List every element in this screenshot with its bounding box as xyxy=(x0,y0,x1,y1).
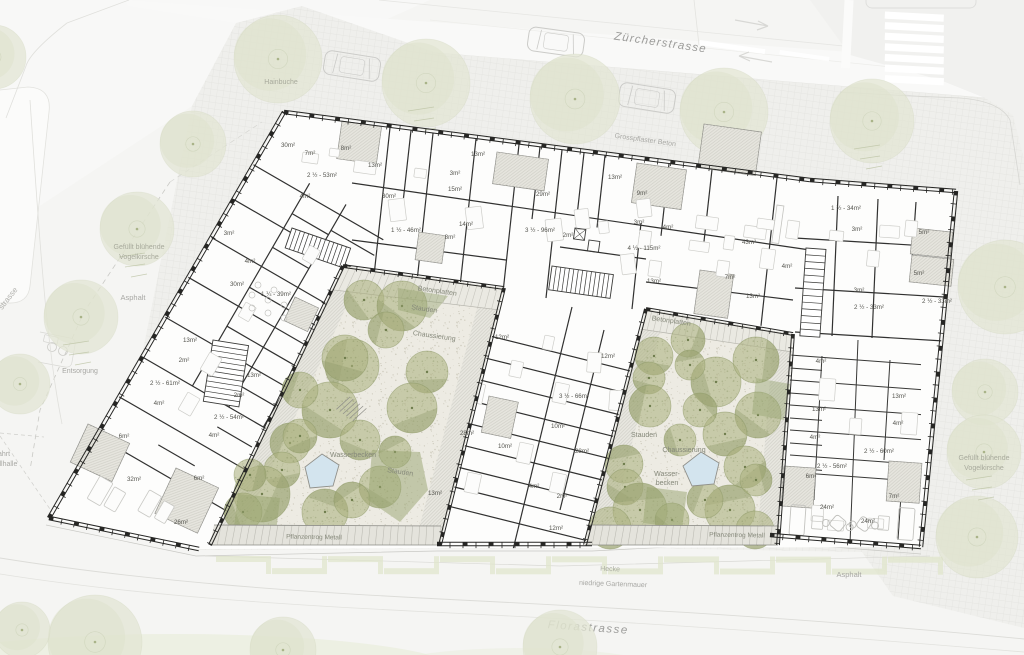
svg-text:Vogelkirsche: Vogelkirsche xyxy=(119,254,159,261)
svg-text:Entsorgung: Entsorgung xyxy=(62,368,98,375)
svg-text:28m²: 28m² xyxy=(460,430,474,437)
svg-text:Einstellhalle: Einstellhalle xyxy=(0,461,17,468)
svg-text:2 ½ - 56m²: 2 ½ - 56m² xyxy=(817,463,847,470)
svg-text:12m²: 12m² xyxy=(549,525,563,532)
svg-text:12m²: 12m² xyxy=(495,334,509,341)
svg-text:4m²: 4m² xyxy=(209,432,220,439)
svg-text:3m²: 3m² xyxy=(854,287,865,294)
svg-text:5m²: 5m² xyxy=(914,270,925,277)
svg-text:4m²: 4m² xyxy=(245,258,256,265)
svg-text:3m²: 3m² xyxy=(634,219,645,226)
svg-text:13m²: 13m² xyxy=(812,406,826,413)
svg-text:2m²: 2m² xyxy=(179,357,190,364)
svg-text:3 ½ - 96m²: 3 ½ - 96m² xyxy=(525,227,555,234)
svg-text:Pflanzentrog Metall: Pflanzentrog Metall xyxy=(286,534,342,542)
svg-text:Hainbuche: Hainbuche xyxy=(264,79,298,86)
svg-text:becken: becken xyxy=(656,480,679,487)
svg-text:6m²: 6m² xyxy=(806,473,817,480)
svg-text:3m²: 3m² xyxy=(450,170,461,177)
svg-text:Chaussierung: Chaussierung xyxy=(662,447,705,454)
svg-text:Asphalt: Asphalt xyxy=(120,293,146,302)
svg-text:Stauden: Stauden xyxy=(631,432,657,439)
svg-text:2 ½ - 53m²: 2 ½ - 53m² xyxy=(307,172,337,179)
svg-text:24m²: 24m² xyxy=(820,504,834,511)
svg-text:12m²: 12m² xyxy=(601,353,615,360)
svg-text:29m²: 29m² xyxy=(536,191,550,198)
svg-text:5m²: 5m² xyxy=(919,229,930,236)
svg-text:30m²: 30m² xyxy=(382,193,396,200)
svg-text:1 ¼ - 39m²: 1 ¼ - 39m² xyxy=(261,291,291,298)
svg-text:43m²: 43m² xyxy=(742,239,756,246)
svg-text:9m²: 9m² xyxy=(637,190,648,197)
svg-text:3m²: 3m² xyxy=(852,226,863,233)
svg-text:Hecke: Hecke xyxy=(600,566,620,574)
svg-text:15m²: 15m² xyxy=(448,186,462,193)
svg-text:28m²: 28m² xyxy=(575,448,589,455)
svg-text:13m²: 13m² xyxy=(892,393,906,400)
svg-text:13m²: 13m² xyxy=(183,337,197,344)
svg-text:1 ½ - 34m²: 1 ½ - 34m² xyxy=(831,205,861,212)
svg-text:2 ½ - 33m²: 2 ½ - 33m² xyxy=(854,304,884,311)
svg-text:32m²: 32m² xyxy=(127,476,141,483)
svg-text:2m²: 2m² xyxy=(234,392,245,399)
svg-text:7m²: 7m² xyxy=(889,493,900,500)
svg-text:Ausfahrt: Ausfahrt xyxy=(0,451,10,458)
svg-text:4m²: 4m² xyxy=(529,483,540,490)
svg-text:10m²: 10m² xyxy=(498,443,512,450)
svg-text:Gefüllt blühende: Gefüllt blühende xyxy=(959,455,1010,462)
svg-text:14m²: 14m² xyxy=(459,221,473,228)
svg-text:13m²: 13m² xyxy=(471,151,485,158)
svg-text:4m²: 4m² xyxy=(300,193,311,200)
svg-text:8m²: 8m² xyxy=(341,145,352,152)
svg-text:Asphalt: Asphalt xyxy=(836,570,862,579)
svg-text:4m²: 4m² xyxy=(154,400,165,407)
svg-text:26m²: 26m² xyxy=(174,519,188,526)
svg-text:13m²: 13m² xyxy=(647,278,661,285)
svg-text:Wasserbecken: Wasserbecken xyxy=(330,452,376,459)
svg-text:10m²: 10m² xyxy=(551,423,565,430)
svg-text:6m²: 6m² xyxy=(194,475,205,482)
svg-text:7m²: 7m² xyxy=(725,274,736,281)
svg-text:13m²: 13m² xyxy=(746,293,760,300)
svg-text:4m²: 4m² xyxy=(816,358,827,365)
svg-text:2m²: 2m² xyxy=(563,232,574,239)
svg-text:8m²: 8m² xyxy=(445,234,456,241)
svg-text:2 ½ - 60m²: 2 ½ - 60m² xyxy=(864,448,894,455)
svg-text:3 ½ - 66m²: 3 ½ - 66m² xyxy=(559,393,589,400)
svg-text:Wasser-: Wasser- xyxy=(654,471,680,478)
svg-text:30m²: 30m² xyxy=(230,281,244,288)
svg-text:Pflanzentrog Metall: Pflanzentrog Metall xyxy=(709,532,765,540)
svg-text:13m²: 13m² xyxy=(428,490,442,497)
svg-text:24m²: 24m² xyxy=(861,518,875,525)
svg-text:4m²: 4m² xyxy=(663,224,674,231)
svg-text:4m²: 4m² xyxy=(782,263,793,270)
svg-text:2 ½ - 33m²: 2 ½ - 33m² xyxy=(922,298,952,305)
svg-text:7m²: 7m² xyxy=(305,150,316,157)
svg-text:13m²: 13m² xyxy=(608,174,622,181)
svg-text:13m²: 13m² xyxy=(247,372,261,379)
svg-text:13m²: 13m² xyxy=(368,162,382,169)
svg-text:3m²: 3m² xyxy=(224,230,235,237)
svg-text:Gefüllt blühende: Gefüllt blühende xyxy=(114,244,165,251)
svg-text:1 ½ - 46m²: 1 ½ - 46m² xyxy=(391,227,421,234)
svg-text:2 ½ - 61m²: 2 ½ - 61m² xyxy=(150,380,180,387)
svg-text:4m²: 4m² xyxy=(893,420,904,427)
svg-text:4 ½ - 115m²: 4 ½ - 115m² xyxy=(628,245,661,252)
svg-text:6m²: 6m² xyxy=(119,433,130,440)
svg-text:30m²: 30m² xyxy=(281,142,295,149)
svg-text:2 ½ - 54m²: 2 ½ - 54m² xyxy=(214,414,244,421)
svg-text:2m²: 2m² xyxy=(557,493,568,500)
svg-text:4m²: 4m² xyxy=(810,434,821,441)
svg-text:Vogelkirsche: Vogelkirsche xyxy=(964,465,1004,472)
